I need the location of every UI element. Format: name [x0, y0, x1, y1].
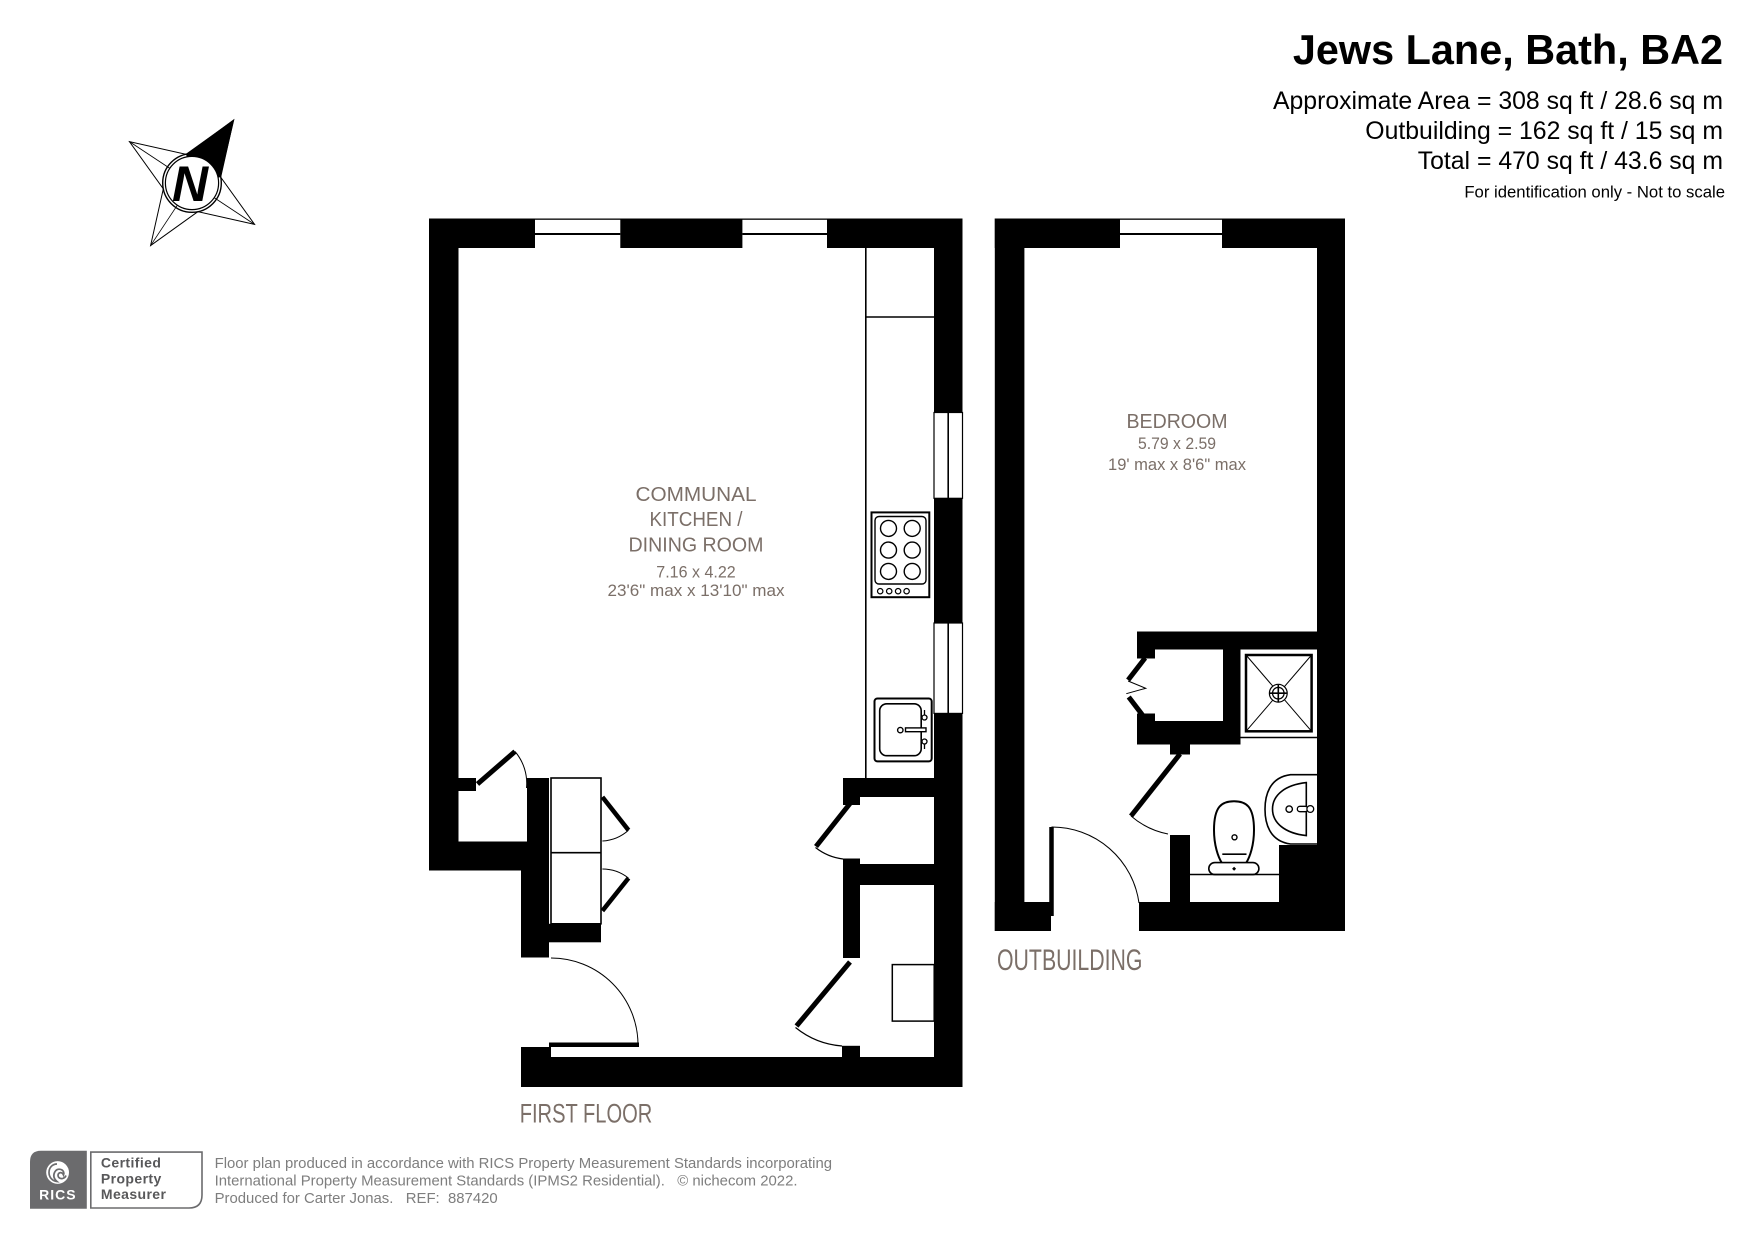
svg-text:7.16 x 4.22: 7.16 x 4.22: [656, 564, 735, 582]
svg-text:Jews Lane, Bath, BA2: Jews Lane, Bath, BA2: [1293, 27, 1723, 73]
svg-text:DINING ROOM: DINING ROOM: [629, 535, 764, 557]
svg-text:19' max x 8'6" max: 19' max x 8'6" max: [1108, 456, 1247, 474]
svg-text:OUTBUILDING: OUTBUILDING: [997, 944, 1143, 977]
svg-text:Measurer: Measurer: [101, 1186, 167, 1202]
svg-text:N: N: [172, 156, 209, 212]
svg-text:BEDROOM: BEDROOM: [1127, 411, 1228, 433]
svg-text:Produced for Carter Jonas. R: Produced for Carter Jonas. REF: 887420: [215, 1191, 498, 1207]
svg-text:5.79 x 2.59: 5.79 x 2.59: [1138, 435, 1216, 453]
svg-text:COMMUNAL: COMMUNAL: [636, 484, 757, 506]
svg-text:23'6" max x 13'10" max: 23'6" max x 13'10" max: [608, 582, 786, 600]
svg-text:Outbuilding = 162 sq ft / 15 s: Outbuilding = 162 sq ft / 15 sq m: [1365, 118, 1723, 145]
svg-text:Approximate Area = 308 sq ft /: Approximate Area = 308 sq ft / 28.6 sq m: [1273, 88, 1723, 115]
svg-text:Floor plan produced in accorda: Floor plan produced in accordance with R…: [215, 1156, 832, 1172]
svg-text:Certified: Certified: [101, 1155, 161, 1171]
svg-text:Total = 470 sq ft / 43.6 sq m: Total = 470 sq ft / 43.6 sq m: [1418, 148, 1723, 175]
svg-text:Property: Property: [101, 1171, 162, 1187]
svg-text:RICS: RICS: [39, 1187, 76, 1203]
svg-text:International Property Measure: International Property Measurement Stand…: [215, 1173, 798, 1189]
svg-text:For identification only - Not: For identification only - Not to scale: [1464, 183, 1725, 202]
svg-text:FIRST FLOOR: FIRST FLOOR: [520, 1099, 653, 1129]
svg-text:KITCHEN /: KITCHEN /: [650, 509, 743, 531]
